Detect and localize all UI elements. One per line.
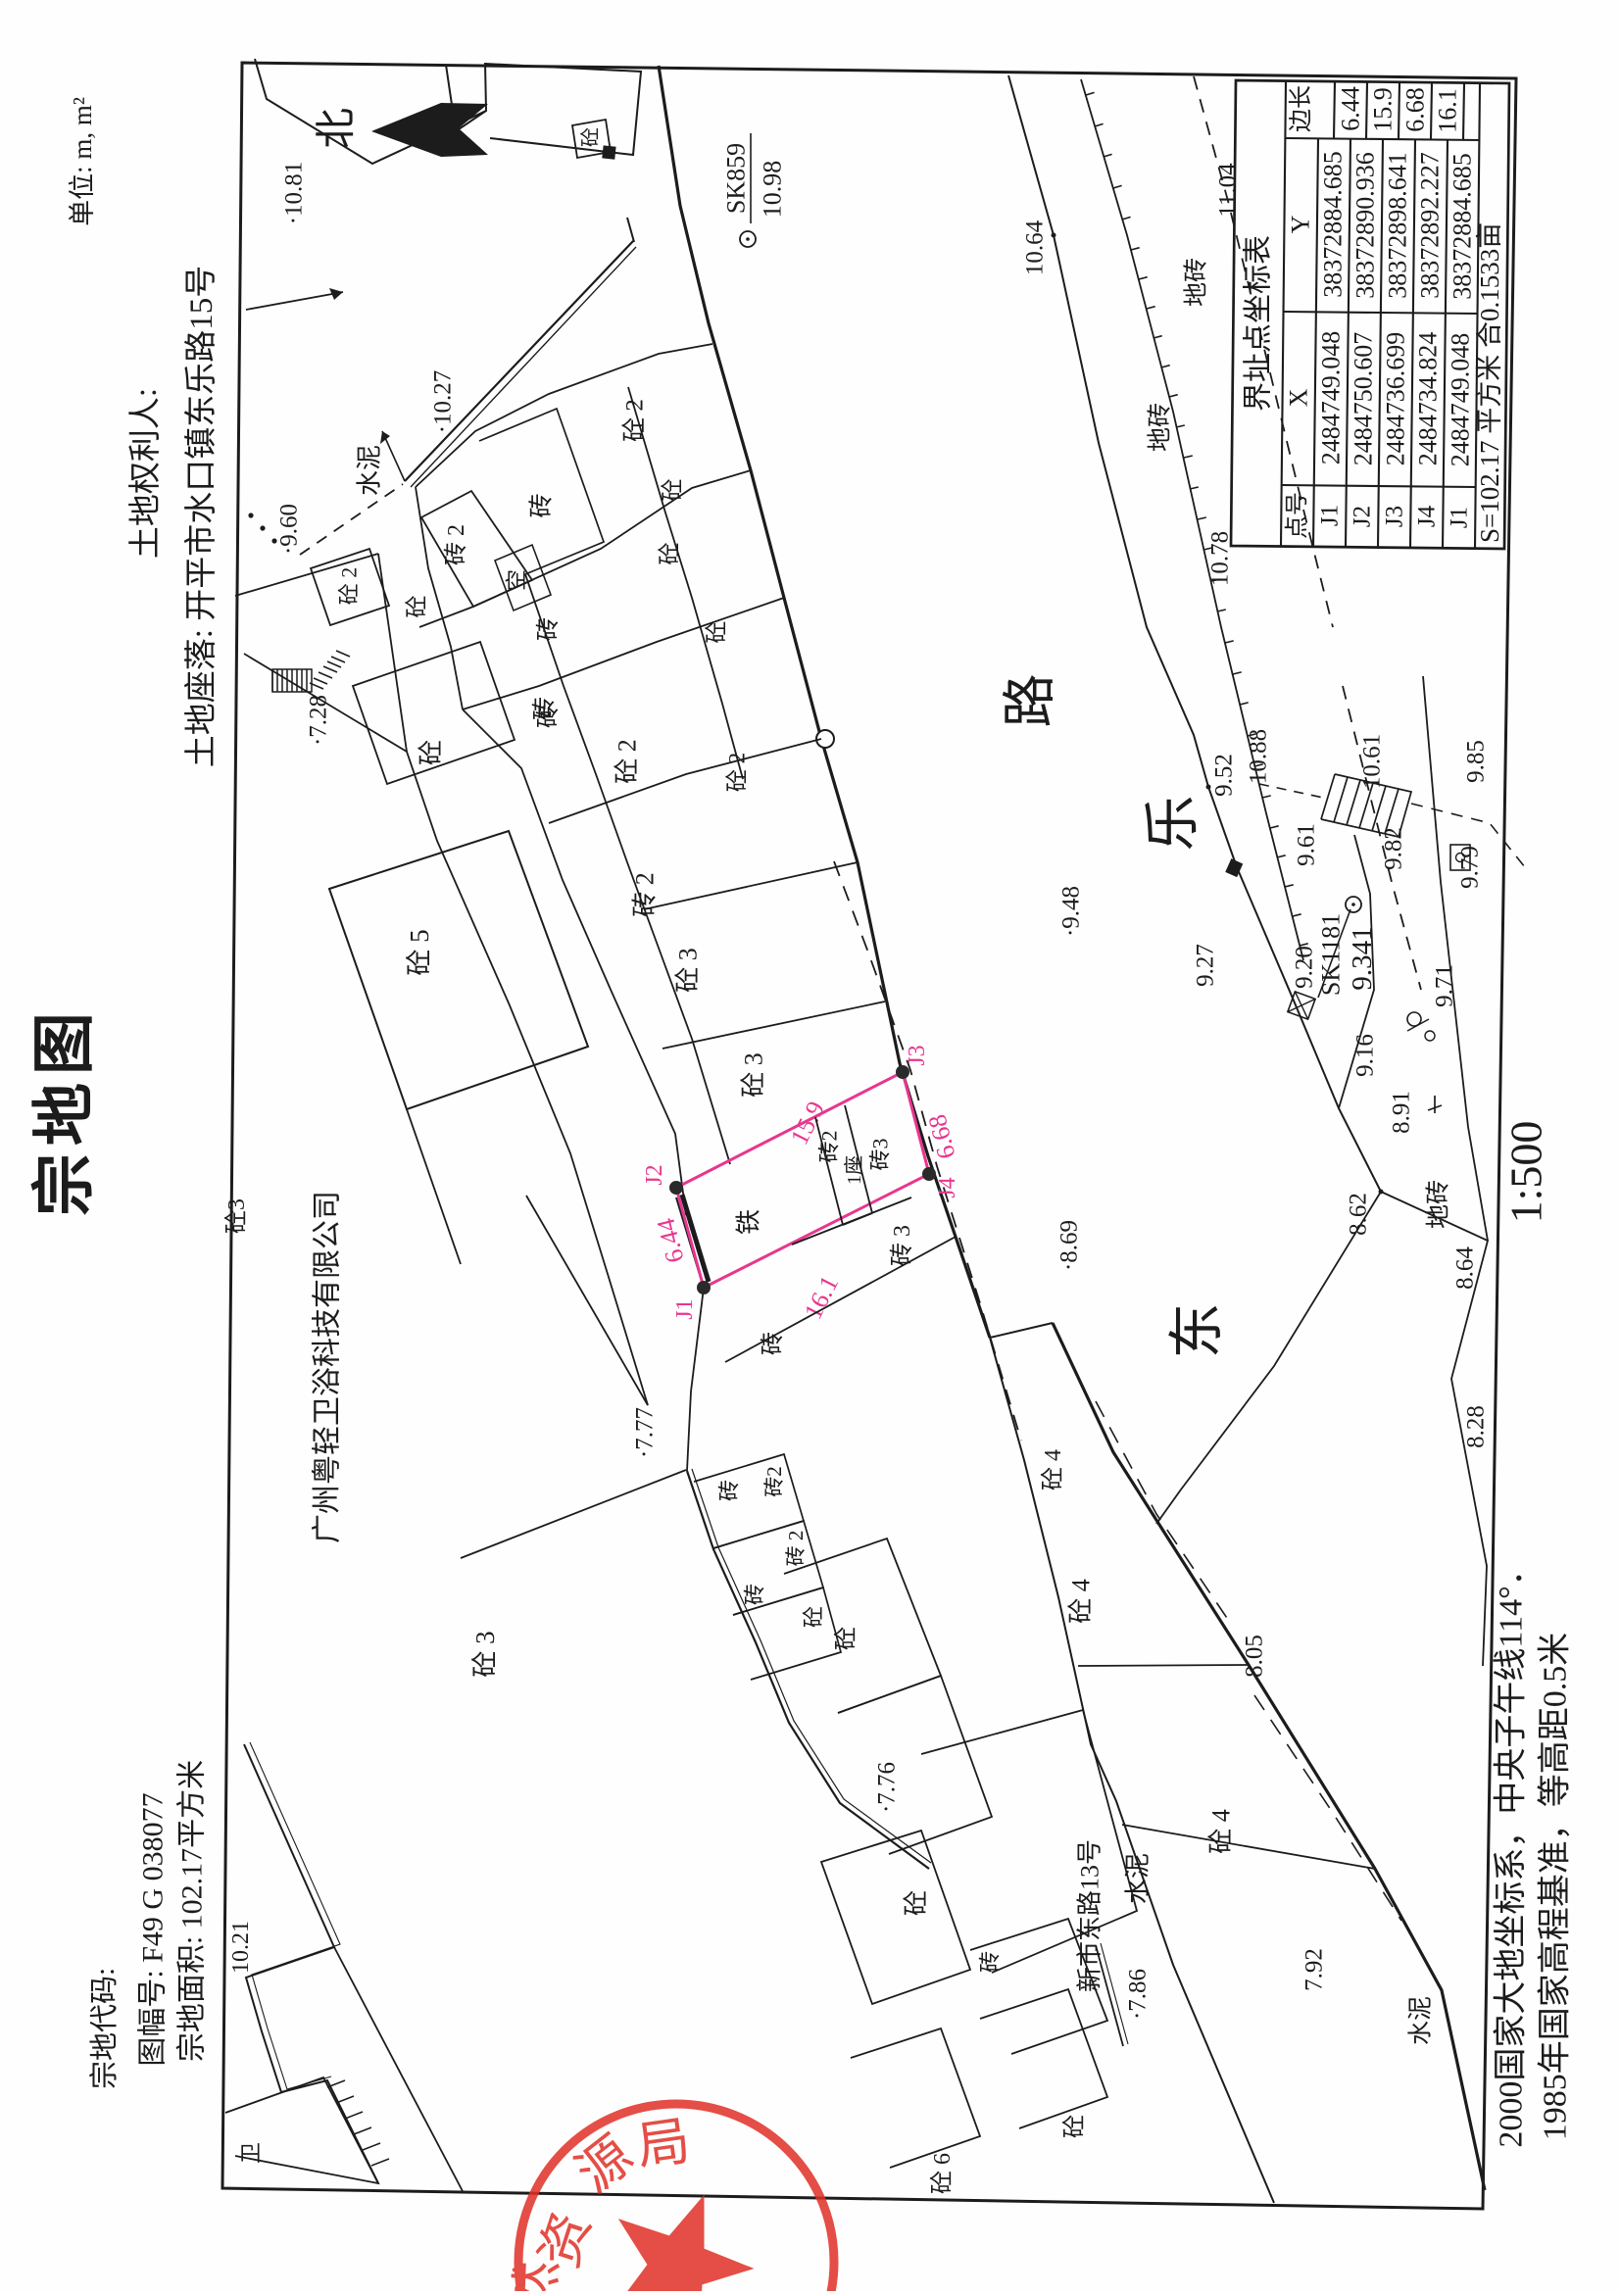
svg-text:·7.28: ·7.28 [306,695,332,746]
svg-text:38372892.227: 38372892.227 [1416,152,1445,299]
svg-text:路: 路 [1001,673,1060,727]
svg-text:砖: 砖 [717,1480,742,1501]
svg-text:砼 2: 砼 2 [614,739,642,784]
svg-text:9.61: 9.61 [1294,823,1320,866]
svg-text:地砖: 地砖 [1183,258,1210,307]
svg-text:砖: 砖 [528,493,556,517]
svg-text:砼 2: 砼 2 [725,753,750,792]
svg-text:·7.77: ·7.77 [632,1407,659,1458]
svg-text:然: 然 [507,2260,567,2291]
svg-text:砖3: 砖3 [868,1138,893,1170]
svg-text:SK859: SK859 [722,143,751,214]
svg-text:J1: J1 [672,1298,698,1319]
svg-text:水泥: 水泥 [1407,1996,1435,2045]
svg-text:J4: J4 [1414,505,1441,527]
svg-text:2484750.607: 2484750.607 [1350,332,1378,466]
svg-text:砼: 砼 [1061,2115,1088,2138]
svg-text:2484749.048: 2484749.048 [1317,331,1346,465]
svg-text:·7.86: ·7.86 [1125,1969,1152,2020]
svg-text:砖2: 砖2 [762,1466,786,1497]
svg-text:11.04: 11.04 [1215,163,1242,218]
svg-text:1:500: 1:500 [1501,1121,1551,1224]
svg-text:J4: J4 [935,1177,960,1197]
svg-text:点号: 点号 [1284,492,1310,539]
svg-text:砼 4: 砼 4 [1067,1579,1096,1624]
svg-text:J1: J1 [1317,505,1344,526]
svg-text:SK1181: SK1181 [1317,913,1346,996]
svg-text:铁: 铁 [735,1209,763,1235]
svg-text:砖 2: 砖 2 [443,524,469,565]
svg-text:J3: J3 [1382,506,1408,527]
svg-text:单位: m, m²: 单位: m, m² [68,97,97,226]
svg-text:·7.76: ·7.76 [874,1762,901,1813]
svg-text:·9.60: ·9.60 [276,504,303,555]
svg-text:6.68: 6.68 [1401,87,1430,132]
svg-text:土地权利人:: 土地权利人: [127,388,164,559]
svg-text:1985年国家高程基准，等高距0.5米: 1985年国家高程基准，等高距0.5米 [1537,1633,1574,2141]
svg-text:水泥: 水泥 [1124,1853,1153,1904]
svg-text:·8.69: ·8.69 [1056,1220,1083,1271]
svg-text:砼3: 砼3 [223,1198,250,1234]
svg-text:砼 5: 砼 5 [405,929,434,975]
svg-text:宗地图: 宗地图 [30,1004,100,1216]
svg-text:乐: 乐 [1143,796,1204,852]
svg-text:8.64: 8.64 [1452,1246,1479,1290]
svg-text:·10.81: ·10.81 [281,162,308,225]
svg-text:8.28: 8.28 [1463,1405,1490,1448]
svg-text:砖: 砖 [531,697,558,720]
svg-text:10.78: 10.78 [1207,531,1234,586]
svg-text:2484749.048: 2484749.048 [1447,333,1475,467]
svg-text:J2: J2 [642,1164,667,1185]
svg-text:新市东路13号: 新市东路13号 [1076,1839,1105,1992]
svg-text:卫: 卫 [239,2142,264,2164]
svg-text:砖 2: 砖 2 [784,1531,808,1567]
svg-text:J1: J1 [1447,507,1473,528]
svg-text:边长: 边长 [1288,85,1314,132]
svg-text:地砖: 地砖 [1425,1180,1452,1229]
svg-text:宗地面积: 102.17平方米: 宗地面积: 102.17平方米 [176,1760,209,2062]
svg-text:·10.27: ·10.27 [430,370,457,434]
svg-text:砼 3: 砼 3 [674,948,703,993]
svg-text:6.44: 6.44 [1337,86,1365,131]
svg-text:砼: 砼 [903,1890,931,1916]
svg-text:砼 4: 砼 4 [1040,1449,1066,1490]
svg-text:1座: 1座 [843,1155,865,1185]
svg-text:砼: 砼 [579,127,602,147]
svg-text:10.64: 10.64 [1022,220,1049,275]
svg-text:X: X [1285,388,1313,407]
svg-text:S=102.17 平方米 合0.1533亩: S=102.17 平方米 合0.1533亩 [1475,222,1504,543]
svg-text:38372898.641: 38372898.641 [1384,152,1412,299]
svg-text:水泥: 水泥 [356,445,384,496]
svg-text:砼 6: 砼 6 [929,2153,956,2194]
svg-text:38372890.936: 38372890.936 [1351,152,1380,299]
svg-text:砼 3: 砼 3 [740,1052,768,1098]
svg-text:2484734.824: 2484734.824 [1414,332,1443,466]
svg-text:10.88: 10.88 [1246,729,1272,784]
svg-text:9.341: 9.341 [1347,926,1378,990]
svg-text:土地座落: 开平市水口镇东乐路15号: 土地座落: 开平市水口镇东乐路15号 [183,266,220,767]
svg-text:砖: 砖 [535,617,562,641]
svg-text:7.92: 7.92 [1301,1948,1328,1991]
svg-text:9.27: 9.27 [1193,944,1219,987]
svg-text:砼: 砼 [417,740,446,765]
svg-text:砼: 砼 [705,621,729,644]
svg-text:15.9: 15.9 [1369,87,1398,132]
svg-text:·9.48: ·9.48 [1058,886,1085,937]
svg-text:砼 2: 砼 2 [621,399,649,442]
svg-text:砖 2: 砖 2 [631,872,660,917]
svg-text:宗地代码:: 宗地代码: [88,1968,121,2089]
svg-text:砼: 砼 [405,596,429,618]
svg-text:广州粤轻卫浴科技有限公司: 广州粤轻卫浴科技有限公司 [312,1191,344,1543]
svg-text:8.62: 8.62 [1346,1193,1372,1236]
svg-text:Y: Y [1287,215,1315,233]
svg-text:砼 4: 砼 4 [1207,1809,1236,1854]
svg-text:9.85: 9.85 [1463,740,1490,783]
svg-text:38372884.685: 38372884.685 [1319,151,1348,298]
svg-text:10.21: 10.21 [228,1921,254,1974]
svg-text:9.16: 9.16 [1352,1034,1379,1077]
svg-text:砼: 砼 [833,1627,859,1650]
svg-text:砼: 砼 [661,479,685,502]
svg-text:砖2: 砖2 [817,1130,842,1162]
svg-text:砖: 砖 [743,1584,767,1605]
svg-text:砼: 砼 [802,1606,826,1628]
svg-text:2000国家大地坐标系，中央子午线114°．: 2000国家大地坐标系，中央子午线114°． [1493,1552,1530,2147]
svg-text:砼 2: 砼 2 [337,567,362,606]
svg-text:9.52: 9.52 [1211,754,1238,797]
svg-text:8.91: 8.91 [1389,1091,1415,1134]
svg-text:9.71: 9.71 [1432,964,1458,1007]
svg-text:16.1: 16.1 [1434,88,1462,133]
svg-text:地砖: 地砖 [1147,403,1174,452]
svg-text:8.05: 8.05 [1242,1635,1268,1678]
svg-text:空: 空 [505,569,529,591]
svg-text:砼: 砼 [658,543,682,565]
svg-text:J2: J2 [1350,506,1376,527]
svg-text:砼 3: 砼 3 [470,1631,500,1677]
svg-text:砖: 砖 [978,1951,1003,1973]
svg-text:图幅号: F49 G 038077: 图幅号: F49 G 038077 [137,1792,170,2066]
svg-text:38372884.685: 38372884.685 [1448,153,1477,300]
svg-text:J3: J3 [905,1045,930,1065]
svg-text:东: 东 [1167,1303,1229,1359]
svg-text:2484736.699: 2484736.699 [1382,332,1410,466]
svg-text:局: 局 [633,2112,694,2177]
svg-text:9.20: 9.20 [1292,946,1318,989]
svg-text:10.98: 10.98 [759,161,787,219]
svg-text:界址点坐标表: 界址点坐标表 [1243,235,1275,412]
